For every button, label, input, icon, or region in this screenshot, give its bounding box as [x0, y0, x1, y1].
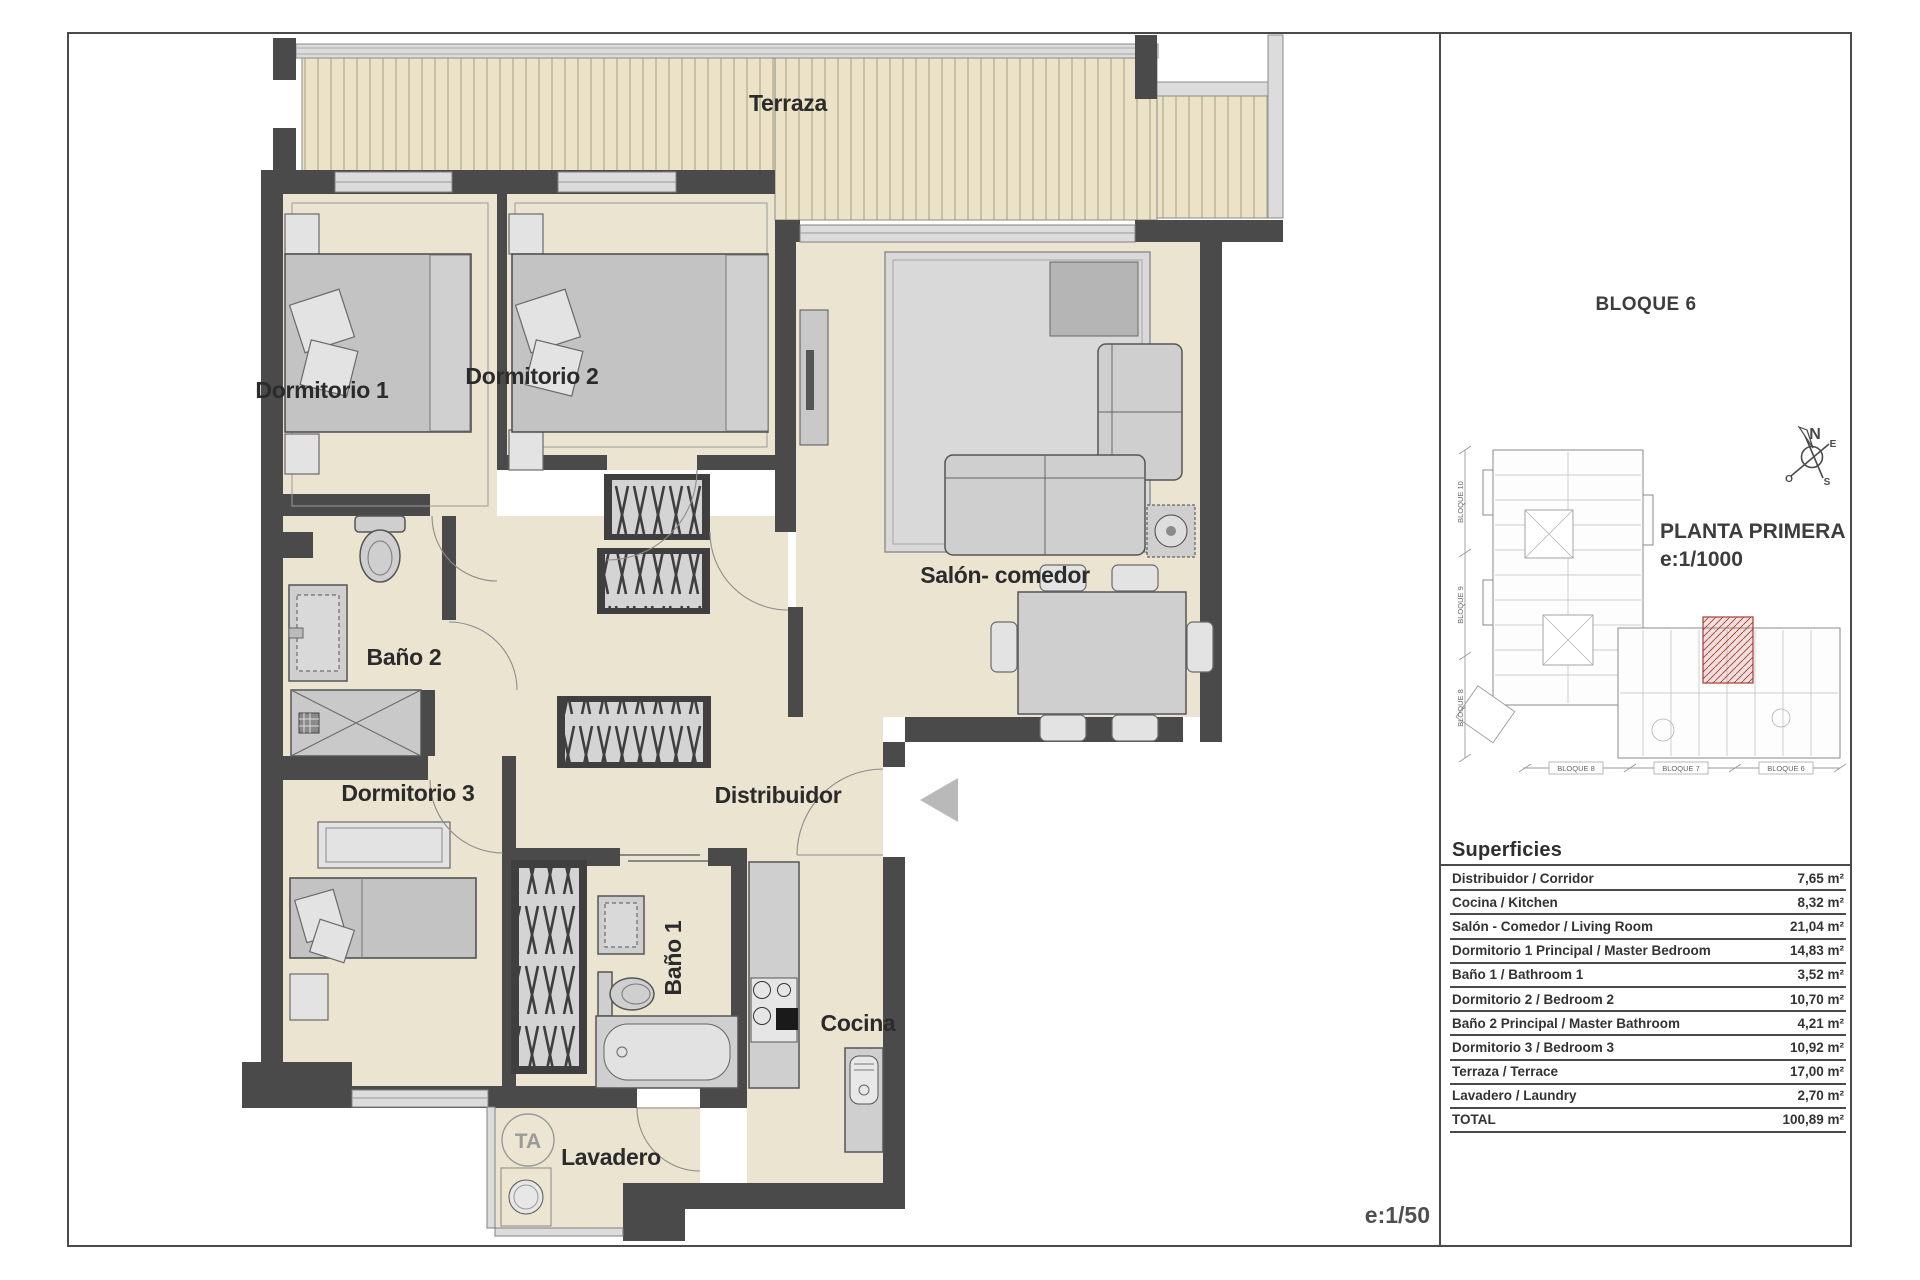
site-map: BLOQUE 10 BLOQUE 9 BLOQUE 8 BLOQUE 8 BLO… — [1456, 446, 1846, 774]
table-row: Dormitorio 3 / Bedroom 3 10,92 m² — [1450, 1036, 1846, 1060]
table-row: Terraza / Terrace 17,00 m² — [1450, 1061, 1846, 1085]
drawing-scale-note: e:1/50 — [1330, 1202, 1430, 1229]
site-label-bottom-1: BLOQUE 7 — [1662, 764, 1700, 773]
counter — [749, 862, 799, 1088]
plan-sheet: Terraza Dormitorio 1 Dormitorio 2 Salón-… — [0, 0, 1920, 1280]
dining-set — [991, 565, 1213, 741]
table-row: Distribuidor / Corridor 7,65 m² — [1450, 867, 1846, 891]
table-row: Lavadero / Laundry 2,70 m² — [1450, 1085, 1846, 1109]
row-label: Dormitorio 1 Principal / Master Bedroom — [1452, 943, 1711, 958]
floor-title-text: PLANTA PRIMERA — [1660, 518, 1846, 546]
chair — [1187, 622, 1213, 672]
label-distribuidor: Distribuidor — [715, 782, 842, 808]
chair — [1112, 565, 1158, 591]
toilet-bowl — [610, 978, 654, 1010]
label-dormitorio1: Dormitorio 1 — [255, 377, 389, 403]
row-label: Salón - Comedor / Living Room — [1452, 919, 1653, 934]
row-value: 2,70 m² — [1797, 1088, 1844, 1103]
site-label-bottom-2: BLOQUE 6 — [1767, 764, 1805, 773]
row-label: Terraza / Terrace — [1452, 1064, 1558, 1079]
floor-scale-text: e:1/1000 — [1660, 546, 1846, 574]
row-label: Cocina / Kitchen — [1452, 895, 1558, 910]
block-title: BLOQUE 6 — [1580, 294, 1712, 316]
kitchen-sink — [850, 1056, 878, 1104]
label-lavadero: Lavadero — [561, 1144, 661, 1170]
nightstand — [290, 974, 328, 1020]
row-label: Baño 1 / Bathroom 1 — [1452, 967, 1583, 982]
row-value: 100,89 m² — [1782, 1112, 1844, 1127]
superficies-title: Superficies — [1452, 839, 1562, 862]
label-salon: Salón- comedor — [920, 562, 1090, 588]
row-value: 14,83 m² — [1790, 943, 1844, 958]
desk — [318, 822, 450, 868]
chair — [1040, 715, 1086, 741]
toilet-bowl — [360, 530, 400, 582]
row-value: 17,00 m² — [1790, 1064, 1844, 1079]
label-cocina: Cocina — [821, 1010, 896, 1036]
table-row: Salón - Comedor / Living Room 21,04 m² — [1450, 915, 1846, 939]
coffee-table — [1050, 262, 1138, 336]
row-label: TOTAL — [1452, 1112, 1496, 1127]
label-dormitorio2: Dormitorio 2 — [465, 363, 598, 389]
superficies-table: Distribuidor / Corridor 7,65 m² Cocina /… — [1450, 867, 1846, 1133]
row-value: 10,70 m² — [1790, 992, 1844, 1007]
row-label: Dormitorio 2 / Bedroom 2 — [1452, 992, 1614, 1007]
row-label: Dormitorio 3 / Bedroom 3 — [1452, 1040, 1614, 1055]
site-label-left-1: BLOQUE 9 — [1456, 586, 1465, 624]
site-label-left-2: BLOQUE 8 — [1456, 689, 1465, 727]
table-row: Baño 1 / Bathroom 1 3,52 m² — [1450, 964, 1846, 988]
table-row: Dormitorio 1 Principal / Master Bedroom … — [1450, 940, 1846, 964]
dining-table — [1018, 592, 1186, 714]
table-row-total: TOTAL 100,89 m² — [1450, 1109, 1846, 1133]
nightstand — [509, 214, 543, 254]
compass-s: S — [1824, 477, 1831, 488]
compass: N E O S — [1785, 426, 1837, 488]
site-label-bottom-0: BLOQUE 8 — [1557, 764, 1595, 773]
table-row: Cocina / Kitchen 8,32 m² — [1450, 891, 1846, 915]
nightstand — [285, 434, 319, 474]
row-label: Lavadero / Laundry — [1452, 1088, 1577, 1103]
site-label-left-0: BLOQUE 10 — [1456, 481, 1465, 523]
label-bano2: Baño 2 — [367, 644, 442, 670]
table-row: Dormitorio 2 / Bedroom 2 10,70 m² — [1450, 988, 1846, 1012]
row-label: Baño 2 Principal / Master Bathroom — [1452, 1016, 1680, 1031]
compass-w: O — [1785, 474, 1793, 485]
compass-e: E — [1830, 439, 1837, 450]
floor-title-block: PLANTA PRIMERA e:1/1000 — [1660, 518, 1846, 574]
label-dormitorio3: Dormitorio 3 — [341, 780, 474, 806]
label-ta: TA — [515, 1130, 541, 1153]
entry-arrow — [920, 778, 958, 822]
row-value: 3,52 m² — [1797, 967, 1844, 982]
nightstand — [509, 430, 543, 470]
row-value: 7,65 m² — [1797, 871, 1844, 886]
row-value: 10,92 m² — [1790, 1040, 1844, 1055]
highlighted-unit — [1703, 617, 1753, 683]
chair — [991, 622, 1017, 672]
row-value: 21,04 m² — [1790, 919, 1844, 934]
nightstand — [285, 214, 319, 254]
label-terraza: Terraza — [749, 90, 828, 116]
chair — [1112, 715, 1158, 741]
label-bano1: Baño 1 — [660, 920, 686, 995]
row-value: 4,21 m² — [1797, 1016, 1844, 1031]
row-value: 8,32 m² — [1797, 895, 1844, 910]
oven — [776, 1008, 798, 1030]
row-label: Distribuidor / Corridor — [1452, 871, 1594, 886]
compass-n: N — [1809, 426, 1821, 443]
table-row: Baño 2 Principal / Master Bathroom 4,21 … — [1450, 1012, 1846, 1036]
